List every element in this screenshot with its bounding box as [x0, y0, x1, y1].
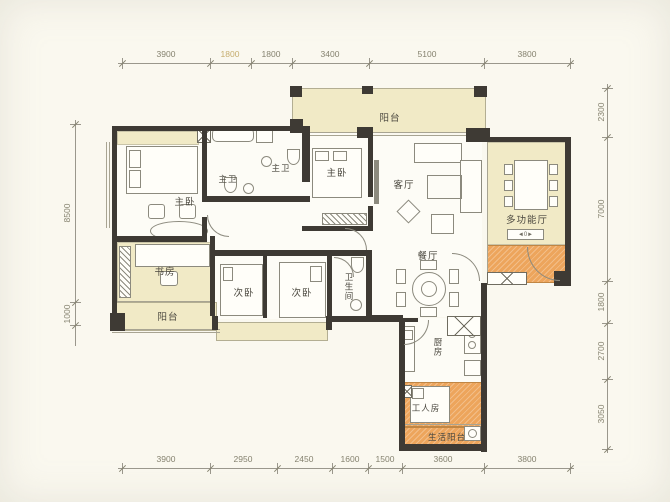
pillow [223, 267, 233, 281]
fridge [464, 360, 481, 376]
dim-tick [565, 463, 576, 474]
room-label-balcony-left: 阳台 [157, 309, 178, 323]
wall-column [212, 316, 218, 330]
room-divider-line [487, 142, 488, 278]
chair [549, 164, 558, 175]
wall-column [110, 313, 125, 331]
wall [399, 444, 487, 451]
wall [263, 250, 267, 318]
dim-tick [602, 83, 613, 94]
chair [504, 164, 513, 175]
room-label-kitchen: 厨房 [432, 338, 444, 357]
wall-column [326, 316, 332, 330]
dim-top-1: 3900 [157, 49, 176, 59]
room-divider-line [402, 424, 482, 425]
dim-bottom-2: 2950 [234, 454, 253, 464]
pillow [129, 150, 141, 168]
dim-tick [602, 444, 613, 455]
dim-bottom-4: 1600 [341, 454, 360, 464]
wall [202, 196, 310, 202]
wall [327, 250, 332, 318]
dim-tick [205, 58, 216, 69]
chair [396, 292, 406, 307]
room-label-dining: 餐厅 [417, 248, 438, 262]
pillow [333, 151, 347, 161]
room-label-maid: 工人房 [412, 402, 441, 414]
dim-tick [602, 374, 613, 385]
wardrobe [322, 213, 367, 225]
dim-right-3: 1800 [596, 293, 606, 312]
wall-column [362, 86, 373, 94]
chair [504, 196, 513, 207]
pillow [315, 151, 329, 161]
dim-tick [363, 463, 374, 474]
chair [549, 196, 558, 207]
multi-table [514, 160, 548, 210]
tv-cabinet [374, 160, 379, 204]
room-divider-line [114, 301, 212, 302]
dim-right-2: 7000 [596, 200, 606, 219]
room-label-multi: 多功能厅 [506, 212, 548, 226]
room-label-master1: 主卧 [174, 194, 195, 208]
wall [210, 250, 370, 256]
wall [487, 137, 571, 142]
chair [549, 180, 558, 191]
dim-tick [602, 318, 613, 329]
dim-tick [479, 58, 490, 69]
kitchen-cabinet [447, 316, 481, 336]
dim-bottom-7: 3800 [518, 454, 537, 464]
armchair [431, 214, 454, 234]
washer-drum [468, 429, 477, 438]
room-label-bedroom-a: 次卧 [233, 285, 254, 299]
sideboard-icon: ◄0► [507, 229, 544, 240]
wall [481, 283, 487, 320]
dim-bottom-5: 1500 [376, 454, 395, 464]
dim-tick [117, 58, 128, 69]
dim-right-1: 2300 [596, 103, 606, 122]
wall [368, 137, 373, 197]
pillow [310, 266, 322, 282]
bookshelf [119, 246, 131, 298]
wall [330, 316, 372, 322]
pillow [129, 170, 141, 188]
dim-tick [327, 463, 338, 474]
wall [202, 128, 207, 200]
dim-tick [272, 463, 283, 474]
wall [112, 236, 205, 242]
dining-table-center [421, 281, 437, 297]
dim-bottom-6: 3600 [434, 454, 453, 464]
room-label-master-bath-b: 主卫 [271, 162, 290, 174]
wall [210, 236, 215, 316]
dim-tick [565, 58, 576, 69]
wall-column [474, 86, 487, 97]
room-label-living: 客厅 [393, 177, 414, 191]
dim-tick [602, 132, 613, 143]
sofa-side [460, 160, 482, 213]
dim-top-6: 3800 [518, 49, 537, 59]
balcony-edge [112, 329, 220, 330]
room-label-bedroom-b: 次卧 [291, 285, 312, 299]
chair [420, 307, 437, 317]
sink [261, 156, 272, 167]
bay-window-line [109, 142, 110, 228]
dim-tick [117, 463, 128, 474]
chair [148, 204, 165, 219]
room-label-study: 书房 [154, 264, 175, 278]
wall [112, 126, 117, 318]
room-label-service-balcony: 生活阳台 [428, 431, 466, 443]
dim-tick [70, 119, 81, 130]
window-line [302, 132, 468, 133]
room-label-master2: 主卧 [326, 165, 347, 179]
wall [481, 318, 487, 452]
bay-window-strip [216, 322, 328, 341]
chair [396, 269, 406, 284]
living-rug [427, 175, 462, 199]
dim-right-5: 3050 [596, 405, 606, 424]
dim-tick [364, 58, 375, 69]
dim-tick [479, 463, 490, 474]
wall [302, 126, 310, 182]
wall-column [290, 86, 302, 97]
dim-bottom-3: 2450 [295, 454, 314, 464]
dim-right-4: 2700 [596, 342, 606, 361]
dim-tick [205, 463, 216, 474]
cabinet [487, 272, 527, 285]
room-label-balcony-top: 阳台 [379, 110, 400, 124]
dim-tick [287, 58, 298, 69]
dim-left-2: 1000 [62, 305, 72, 324]
wall [112, 126, 309, 131]
dim-top-2: 1800 [221, 49, 240, 59]
dim-tick [246, 58, 257, 69]
dim-line-bottom [118, 468, 574, 469]
dim-top-3: 1800 [262, 49, 281, 59]
dim-bottom-1: 3900 [157, 454, 176, 464]
pillow [412, 388, 424, 399]
dim-top-4: 3400 [321, 49, 340, 59]
bay-window-line [106, 142, 107, 228]
dim-top-5: 5100 [418, 49, 437, 59]
sink [243, 183, 254, 194]
floor-plan: ◄0► [0, 0, 670, 502]
master-closet-strip [117, 131, 199, 145]
chair [504, 180, 513, 191]
window-line [302, 135, 468, 136]
wall [366, 250, 372, 322]
dim-line-top [118, 63, 574, 64]
wall [302, 226, 373, 231]
burner [468, 341, 476, 349]
dim-tick [397, 463, 408, 474]
dim-tick [602, 276, 613, 287]
wall [565, 140, 571, 286]
chair [449, 292, 459, 307]
dim-left-1: 8500 [62, 204, 72, 223]
sofa [414, 143, 462, 163]
dim-line-left [75, 120, 76, 346]
balcony-edge [112, 332, 220, 333]
room-label-master-bath-a: 主卫 [218, 173, 237, 185]
room-label-bathroom: 卫生间 [343, 273, 355, 302]
